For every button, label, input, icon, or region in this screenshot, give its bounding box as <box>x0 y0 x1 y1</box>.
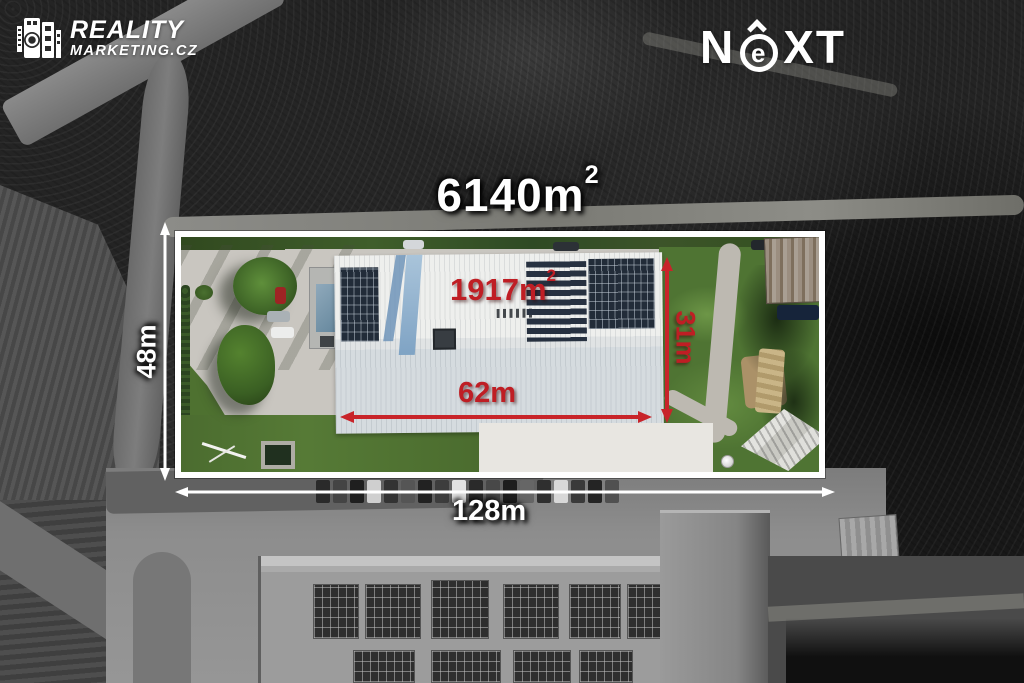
tree-line <box>786 618 1024 683</box>
total-area-label: 6140m2 <box>408 172 628 218</box>
parked-car <box>384 480 398 503</box>
white-van <box>403 240 424 249</box>
parked-car <box>350 480 364 503</box>
parked-car <box>588 480 602 503</box>
building-area-value: 1917m <box>450 272 547 307</box>
utility-pole <box>201 433 249 471</box>
rooftop-solar-array <box>513 650 571 683</box>
building-area-label: 1917m2 <box>450 274 556 305</box>
parked-car <box>435 480 449 503</box>
hay-pile <box>755 348 785 414</box>
rooftop-solar-array <box>340 267 379 341</box>
rooftop-solar-array <box>579 650 633 683</box>
building-width-label: 31m <box>672 303 699 373</box>
red-car <box>275 287 286 304</box>
rooftop-solar-array <box>353 650 415 683</box>
parked-car <box>537 480 551 503</box>
reality-marketing-logo: REALITY MARKETING.CZ <box>16 12 198 62</box>
parked-car <box>316 480 330 503</box>
plot-depth-label: 48m <box>134 317 161 387</box>
industrial-hall-roof <box>258 556 683 683</box>
building-area-superscript: 2 <box>547 266 556 285</box>
roof-chimney <box>433 328 456 349</box>
rooftop-solar-array <box>365 584 421 639</box>
round-tank <box>721 455 734 468</box>
reality-marketing-logo-text: REALITY MARKETING.CZ <box>70 16 198 59</box>
building-length-label: 62m <box>458 379 516 408</box>
parked-car <box>367 480 381 503</box>
dark-car <box>553 242 579 251</box>
tree <box>233 257 297 315</box>
parked-car <box>401 480 415 503</box>
shrub <box>195 285 213 300</box>
property-boundary-box <box>175 231 825 478</box>
parked-car <box>571 480 585 503</box>
rusty-shed <box>764 237 819 304</box>
paved-area <box>479 423 713 472</box>
outbuilding-door <box>320 336 334 347</box>
total-area-superscript: 2 <box>585 161 600 189</box>
rooftop-solar-array <box>313 584 359 639</box>
next-logo-e: e <box>751 40 767 66</box>
yard-patch <box>133 552 191 683</box>
parked-car <box>333 480 347 503</box>
white-car <box>271 327 294 338</box>
reality-marketing-logo-icon <box>16 12 62 62</box>
rooftop-solar-array <box>569 584 621 639</box>
reality-logo-title: REALITY <box>70 16 198 45</box>
rooftop-solar-array <box>431 580 489 639</box>
real-estate-aerial-photo: 6140m2 1917m2 48m 31m 62m 128m REALITY M… <box>0 0 1024 683</box>
reality-logo-subtitle: MARKETING.CZ <box>70 43 198 59</box>
tree <box>217 325 275 405</box>
rooftop-solar-array <box>503 584 559 639</box>
parked-car <box>554 480 568 503</box>
next-logo-xt: XT <box>783 20 846 74</box>
next-logo-n: N <box>700 20 735 74</box>
parked-car <box>418 480 432 503</box>
next-logo-e-badge: e <box>740 34 778 72</box>
industrial-annex-building <box>660 510 770 683</box>
pond <box>261 441 295 469</box>
caret-up-icon <box>747 19 767 39</box>
rooftop-solar-array <box>588 258 655 329</box>
total-area-value: 6140m <box>436 169 584 221</box>
parked-car <box>605 480 619 503</box>
plot-frontage-label: 128m <box>452 497 526 526</box>
dark-blue-car <box>777 305 819 320</box>
gray-car <box>267 311 290 322</box>
rooftop-solar-array <box>431 650 501 683</box>
next-logo: N e XT <box>700 20 846 74</box>
